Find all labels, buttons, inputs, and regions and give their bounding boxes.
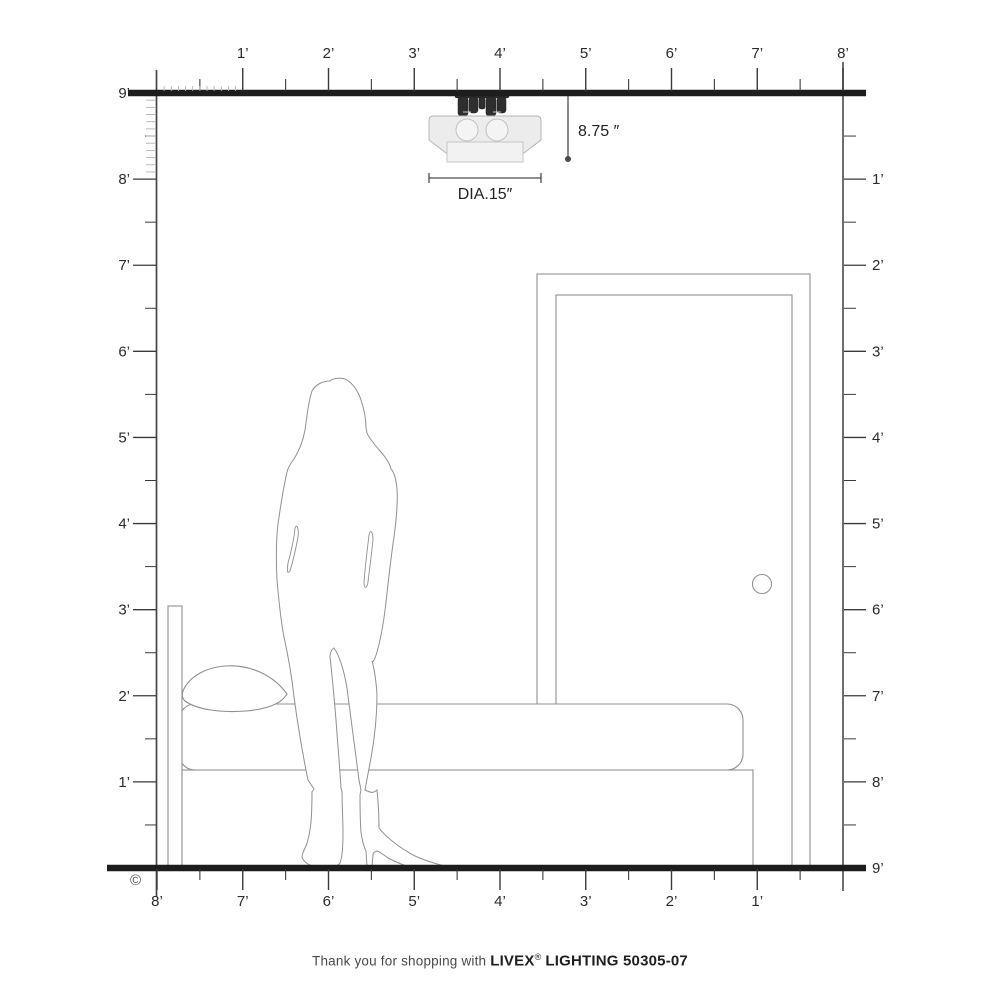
footer-product-number: LIGHTING 50305-07 — [545, 953, 688, 970]
right-ruler-label: 1’ — [872, 171, 884, 188]
bottom-ruler-label: 4’ — [494, 893, 506, 910]
bottom-ruler-label: 8’ — [151, 893, 163, 910]
left-ruler-label: 4’ — [118, 516, 130, 533]
left-ruler-label: 8’ — [118, 171, 130, 188]
top-ruler-label: 6’ — [666, 45, 678, 62]
right-ruler-label: 4’ — [872, 429, 884, 446]
top-ruler-label: 8’ — [837, 45, 849, 62]
ceiling-light-fixture — [429, 91, 541, 162]
bottom-ruler-label: 2’ — [666, 893, 678, 910]
fixture-socket — [479, 97, 485, 109]
bottom-ruler-label: 3’ — [580, 893, 592, 910]
left-ruler-label: 3’ — [118, 602, 130, 619]
light-bulb — [456, 119, 478, 141]
fixture-socket — [458, 97, 468, 116]
left-ruler-label: 2’ — [118, 688, 130, 705]
top-ruler-label: 1’ — [237, 45, 249, 62]
left-ruler-label: 6’ — [118, 343, 130, 360]
right-ruler-label: 7’ — [872, 688, 884, 705]
top-ruler-label: 5’ — [580, 45, 592, 62]
right-ruler-label: 8’ — [872, 774, 884, 791]
bottom-ruler-label: 1’ — [751, 893, 763, 910]
top-ruler-label: 2’ — [323, 45, 335, 62]
light-bulb — [486, 119, 508, 141]
fixture-diffuser-band — [447, 142, 523, 162]
right-ruler-label: 9’ — [872, 860, 884, 877]
diagram-canvas: 8.75 ″ DIA.15″ 1’2’3’4’5’6’7’8’9’8’7’6’5… — [0, 0, 1000, 1000]
left-ruler-label: 7’ — [118, 257, 130, 274]
right-ruler-label: 3’ — [872, 343, 884, 360]
door-knob — [753, 575, 772, 594]
footer-message: Thank you for shopping with LIVEX® LIGHT… — [0, 952, 1000, 970]
footer-brand: LIVEX — [490, 953, 534, 970]
bottom-ruler-label: 7’ — [237, 893, 249, 910]
registered-trademark: ® — [535, 952, 542, 962]
fixture-socket — [486, 97, 496, 116]
headboard — [168, 606, 182, 868]
left-ruler-label: 9’ — [118, 85, 130, 102]
scale-diagram: 8.75 ″ DIA.15″ 1’2’3’4’5’6’7’8’9’8’7’6’5… — [0, 0, 1000, 1000]
right-ruler-label: 2’ — [872, 257, 884, 274]
bottom-ruler-label: 5’ — [408, 893, 420, 910]
left-ruler-label: 5’ — [118, 429, 130, 446]
copyright-symbol: © — [130, 872, 141, 889]
pillow — [182, 666, 287, 712]
top-ruler-label: 3’ — [408, 45, 420, 62]
mattress — [179, 704, 743, 770]
height-dimension-label: 8.75 ″ — [578, 123, 620, 140]
diameter-dimension-label: DIA.15″ — [458, 186, 513, 203]
right-ruler-label: 5’ — [872, 516, 884, 533]
fixture-socket — [469, 97, 478, 113]
bed-base — [182, 770, 753, 868]
footer-thanks-text: Thank you for shopping with — [312, 954, 486, 969]
left-ruler-label: 1’ — [118, 774, 130, 791]
bottom-ruler-label: 6’ — [323, 893, 335, 910]
height-dimension-endpoint — [565, 156, 571, 162]
top-ruler-label: 4’ — [494, 45, 506, 62]
fixture-socket — [497, 97, 506, 113]
right-ruler-label: 6’ — [872, 602, 884, 619]
top-ruler-label: 7’ — [751, 45, 763, 62]
